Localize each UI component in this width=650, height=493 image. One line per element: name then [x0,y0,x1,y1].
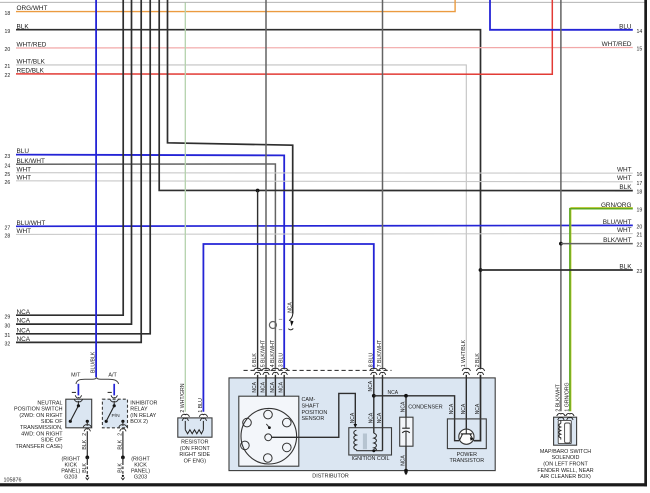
svg-text:2: 2 [82,433,88,436]
svg-text:32: 32 [5,342,11,348]
svg-text:24: 24 [5,163,11,169]
svg-text:16: 16 [637,172,643,178]
svg-text:POSITION: POSITION [302,410,328,416]
svg-text:SOLENOID: SOLENOID [552,455,580,461]
svg-text:26: 26 [5,180,11,186]
svg-text:PANEL): PANEL) [131,469,150,475]
svg-text:BLU/BLK: BLU/BLK [91,351,97,373]
svg-text:SHAFT: SHAFT [302,404,320,410]
svg-text:G203: G203 [134,475,147,481]
svg-text:TRANSFER CASE): TRANSFER CASE) [15,444,62,450]
svg-text:NCA: NCA [461,403,467,414]
svg-text:28: 28 [5,234,11,240]
svg-text:RIGHT SIDE: RIGHT SIDE [179,452,210,458]
svg-text:SENSOR: SENSOR [302,416,325,422]
svg-text:DISTRIBUTOR: DISTRIBUTOR [312,473,349,479]
svg-text:1 BLU: 1 BLU [198,398,204,413]
svg-text:2 BLK: 2 BLK [475,353,481,368]
svg-text:2 BLK/WHT: 2 BLK/WHT [556,383,562,411]
svg-text:BLU: BLU [619,23,632,30]
svg-text:SIDE OF: SIDE OF [41,438,63,444]
svg-text:25: 25 [5,172,11,178]
svg-text:NCA: NCA [279,381,285,392]
svg-text:WHT: WHT [617,227,632,234]
svg-text:NEUTRAL: NEUTRAL [37,400,62,406]
svg-text:BLU: BLU [17,148,30,155]
svg-text:BLK: BLK [82,439,88,449]
svg-text:RESISTOR: RESISTOR [181,440,209,446]
svg-text:1 WHT/BLK: 1 WHT/BLK [461,339,467,367]
svg-text:BLK: BLK [118,439,124,449]
svg-text:5 BLK/WHT: 5 BLK/WHT [261,339,267,367]
svg-text:NCA: NCA [17,336,31,343]
svg-text:NCA: NCA [388,390,399,396]
svg-text:3 BLU: 3 BLU [279,353,285,368]
svg-text:WHT: WHT [17,228,32,235]
svg-text:WHT/BLK: WHT/BLK [17,59,46,66]
svg-text:IGNITION COIL: IGNITION COIL [351,456,389,462]
svg-text:(ON LEFT FRONT: (ON LEFT FRONT [543,462,588,468]
svg-text:2: 2 [118,433,124,436]
svg-text:G203: G203 [64,475,77,481]
svg-text:105876: 105876 [4,477,22,483]
svg-text:KICK: KICK [134,463,147,469]
svg-text:WHT: WHT [617,175,632,182]
svg-text:(RIGHT: (RIGHT [131,456,150,462]
svg-text:BLK/WHT: BLK/WHT [17,158,46,165]
svg-text:RELAY: RELAY [130,407,148,413]
svg-text:NCA: NCA [368,380,374,391]
svg-text:CAM-: CAM- [302,397,316,403]
svg-text:NCA: NCA [17,318,31,325]
svg-text:1 GRN/ORG: 1 GRN/ORG [565,382,571,411]
svg-text:NCA: NCA [368,412,374,423]
svg-text:WHT/RED: WHT/RED [602,41,632,48]
svg-text:BLK: BLK [82,462,88,472]
svg-text:29: 29 [5,314,11,320]
svg-text:MAP/BARO SWITCH: MAP/BARO SWITCH [540,449,591,455]
svg-text:BLK: BLK [17,23,30,30]
svg-text:PANEL): PANEL) [61,469,80,475]
svg-text:BLK: BLK [619,184,632,191]
svg-text:NCA: NCA [449,403,455,414]
svg-text:P/N: P/N [112,413,121,419]
svg-text:(IN RELAY: (IN RELAY [130,413,156,419]
svg-text:14: 14 [637,29,643,35]
svg-text:(2WD: ON RIGHT: (2WD: ON RIGHT [19,413,63,419]
svg-text:BLK: BLK [619,264,632,271]
svg-text:30: 30 [5,323,11,329]
svg-text:4 BLK/WHT: 4 BLK/WHT [270,339,276,367]
svg-text:NCA: NCA [287,302,293,313]
svg-text:NCA: NCA [270,381,276,392]
svg-text:21: 21 [637,233,643,239]
svg-text:NCA: NCA [400,455,406,466]
svg-text:19: 19 [5,29,11,35]
svg-text:7 BLK/WHT: 7 BLK/WHT [377,339,383,367]
svg-text:21: 21 [5,64,11,70]
svg-text:22: 22 [5,73,11,79]
svg-text:NCA: NCA [350,412,356,423]
svg-text:A/T: A/T [108,372,117,378]
svg-text:23: 23 [637,269,643,275]
svg-text:(RIGHT: (RIGHT [62,456,81,462]
svg-text:NCA: NCA [261,381,267,392]
svg-text:OF ENG): OF ENG) [184,459,207,465]
svg-text:FENDER WELL, NEAR: FENDER WELL, NEAR [537,468,593,474]
svg-text:WHT/RED: WHT/RED [17,42,47,49]
svg-text:23: 23 [5,154,11,160]
svg-text:4WD: ON RIGHT: 4WD: ON RIGHT [21,431,63,437]
svg-text:WHT: WHT [17,174,32,181]
svg-text:TRANSISTOR: TRANSISTOR [449,458,484,464]
svg-text:INHIBITOR: INHIBITOR [130,400,157,406]
svg-text:CONDENSER: CONDENSER [408,404,443,410]
svg-text:ORG/WHT: ORG/WHT [17,5,48,12]
svg-text:NCA: NCA [17,327,31,334]
svg-text:SIDE OF: SIDE OF [41,419,63,425]
svg-text:BLK: BLK [118,462,124,472]
svg-text:AIR CLEANER BOX): AIR CLEANER BOX) [540,474,591,480]
svg-text:NCA: NCA [252,381,258,392]
svg-text:WHT: WHT [17,166,32,173]
svg-text:BLU/WHT: BLU/WHT [603,219,632,226]
svg-text:NCA: NCA [400,401,406,412]
svg-text:19: 19 [637,208,643,214]
svg-text:POSITION SWITCH: POSITION SWITCH [14,407,63,413]
svg-text:6 BLK: 6 BLK [252,353,258,368]
svg-text:BOX 2): BOX 2) [130,419,148,425]
svg-text:22: 22 [637,243,643,249]
svg-text:8 BLU: 8 BLU [368,353,374,368]
svg-text:20: 20 [5,47,11,53]
svg-text:2 WHT/GRN: 2 WHT/GRN [180,383,186,412]
svg-text:17: 17 [637,181,643,187]
svg-text:KICK: KICK [65,463,78,469]
svg-text:NCA: NCA [17,309,31,316]
svg-text:POWER: POWER [457,452,477,458]
svg-text:NCA: NCA [475,403,481,414]
svg-text:TRANSMISSION,: TRANSMISSION, [20,425,63,431]
svg-text:M/T: M/T [71,372,81,378]
svg-text:WHT: WHT [617,167,632,174]
svg-text:NCA: NCA [377,412,383,423]
svg-text:20: 20 [637,224,643,230]
svg-text:(ON FRONT: (ON FRONT [180,446,211,452]
svg-text:GRN/ORG: GRN/ORG [601,202,632,209]
svg-text:27: 27 [5,226,11,232]
svg-text:18: 18 [637,190,643,196]
svg-text:18: 18 [5,11,11,17]
svg-text:BLU/WHT: BLU/WHT [17,220,46,227]
svg-text:31: 31 [5,333,11,339]
svg-text:BLK/WHT: BLK/WHT [603,237,632,244]
svg-text:15: 15 [637,47,643,53]
svg-text:RED/BLK: RED/BLK [17,68,45,75]
